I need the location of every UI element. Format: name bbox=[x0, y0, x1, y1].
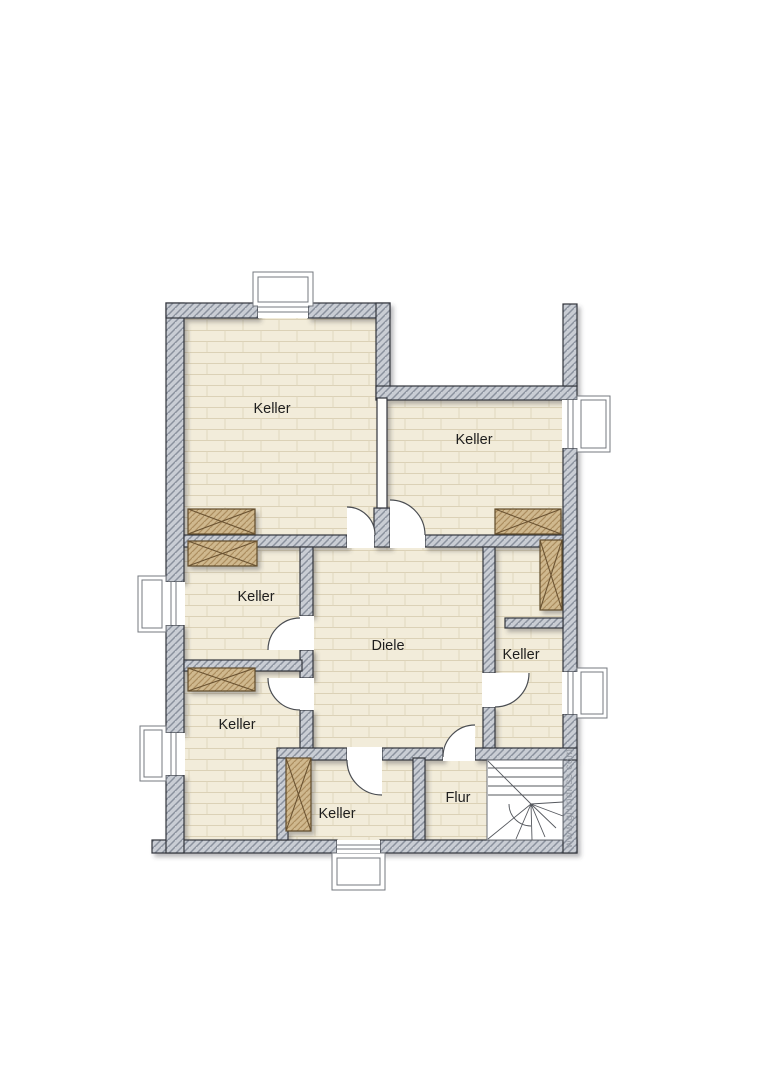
room-label-keller-middle-left: Keller bbox=[237, 589, 274, 605]
room-label-keller-top-right: Keller bbox=[455, 432, 492, 448]
window-light-well bbox=[332, 840, 385, 890]
window-light-well bbox=[253, 272, 313, 318]
room-label-keller-bottom-left: Keller bbox=[218, 717, 255, 733]
room-floor-keller-top-left bbox=[184, 317, 377, 538]
room-label-corridor: Flur bbox=[446, 790, 471, 806]
room-label-hall: Diele bbox=[371, 638, 404, 654]
window-light-well bbox=[562, 396, 610, 452]
room-label-keller-bottom-center: Keller bbox=[318, 806, 355, 822]
room-label-keller-right: Keller bbox=[502, 647, 539, 663]
window-light-well bbox=[140, 726, 185, 781]
watermark-text: www.grundriss.com bbox=[563, 748, 575, 849]
window-light-well bbox=[138, 576, 185, 632]
thin-partition-wall bbox=[377, 398, 387, 508]
wall-stub-top-right bbox=[563, 304, 577, 386]
floor-plan-svg: Keller Keller Keller Diele Keller Keller… bbox=[0, 0, 763, 1080]
window-light-well bbox=[562, 668, 607, 718]
floor-plan-page: Keller Keller Keller Diele Keller Keller… bbox=[0, 0, 763, 1080]
winder-staircase bbox=[487, 760, 563, 840]
room-label-keller-top-left: Keller bbox=[253, 401, 290, 417]
